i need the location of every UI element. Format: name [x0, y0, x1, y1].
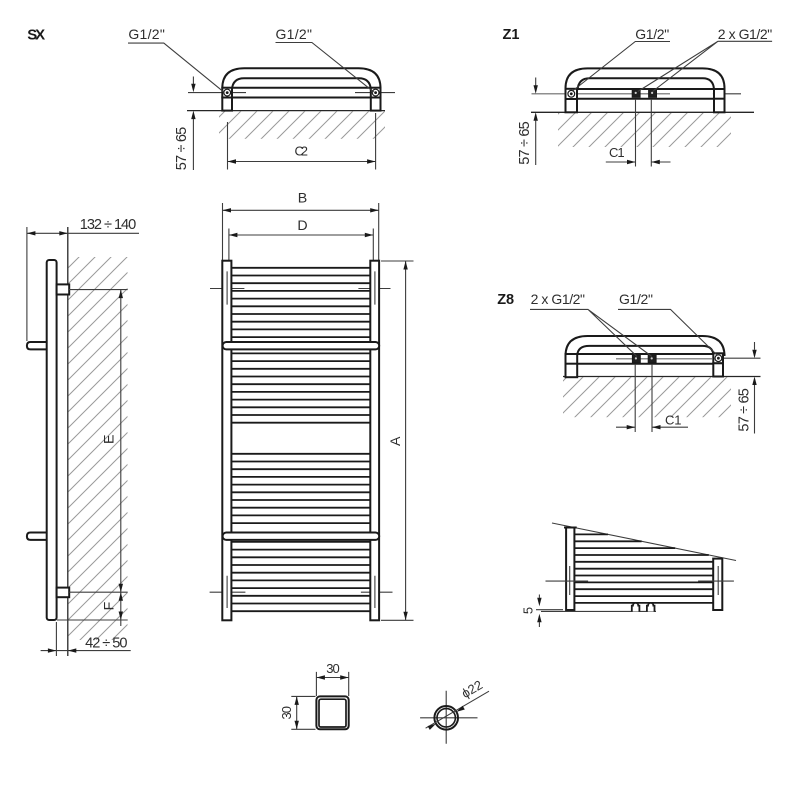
svg-text:30: 30 — [279, 706, 294, 720]
svg-text:2 x G1/2": 2 x G1/2" — [531, 291, 585, 307]
svg-text:2 x G1/2": 2 x G1/2" — [718, 26, 772, 42]
svg-text:D: D — [297, 218, 307, 234]
svg-text:Z8: Z8 — [497, 292, 514, 308]
svg-text:C1: C1 — [665, 412, 682, 427]
svg-text:5: 5 — [521, 607, 536, 614]
svg-text:G1/2": G1/2" — [128, 26, 165, 42]
svg-text:132 ÷ 140: 132 ÷ 140 — [80, 217, 137, 233]
svg-text:30: 30 — [326, 661, 340, 676]
svg-text:57 ÷ 65: 57 ÷ 65 — [737, 388, 753, 432]
svg-text:E: E — [101, 435, 117, 444]
svg-text:A: A — [388, 436, 404, 446]
svg-text:G1/2": G1/2" — [635, 26, 669, 42]
svg-text:B: B — [298, 190, 307, 206]
svg-text:57 ÷ 65: 57 ÷ 65 — [517, 121, 533, 165]
svg-text:Z1: Z1 — [503, 27, 520, 43]
svg-text:F: F — [101, 601, 117, 610]
svg-text:57 ÷ 65: 57 ÷ 65 — [174, 127, 190, 171]
svg-text:G1/2": G1/2" — [619, 291, 653, 307]
svg-text:C2: C2 — [294, 144, 308, 159]
svg-text:G1/2": G1/2" — [275, 26, 312, 42]
svg-text:42 ÷ 50: 42 ÷ 50 — [85, 635, 127, 651]
svg-text:C1: C1 — [609, 145, 625, 160]
svg-text:SX: SX — [27, 27, 45, 44]
